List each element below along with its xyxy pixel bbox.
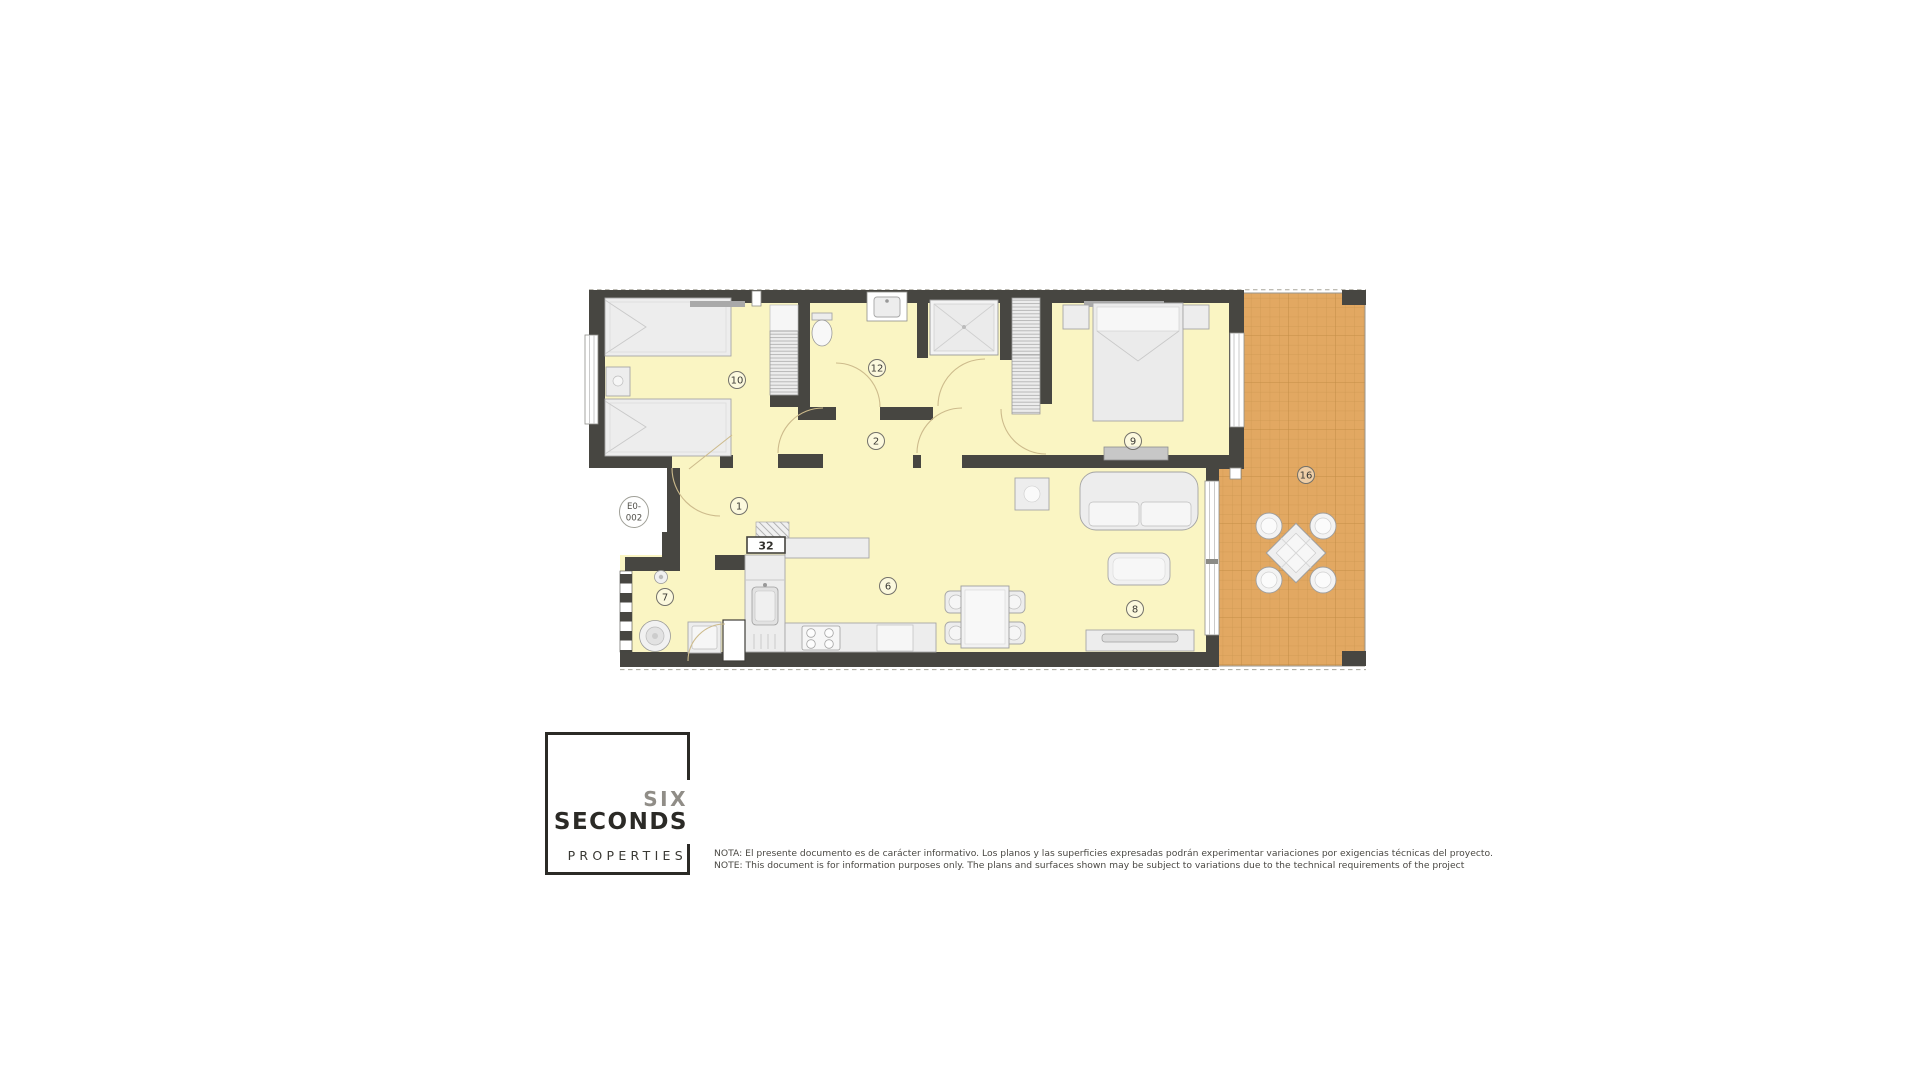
room-label-6: 6 [880,578,897,595]
utility-appliance [688,622,721,653]
disclaimer-note: NOTA: El presente documento es de caráct… [714,848,1406,872]
logo-border-bottom [545,872,690,875]
nightstand-right [1183,305,1209,329]
svg-text:12: 12 [871,364,884,375]
room-label-7: 7 [657,589,674,606]
logo-border-top [545,732,690,735]
boxed-label-32: 32 [747,537,785,553]
terrace-pillar [1230,468,1241,479]
svg-text:16: 16 [1300,471,1313,482]
svg-text:9: 9 [1130,437,1136,448]
room-label-12: 12 [869,360,886,377]
washing-machine [640,621,671,652]
utility-door-leaf [723,620,745,661]
logo-border-right-bottom [687,844,690,875]
double-bed [1093,303,1183,421]
six-seconds-logo: SIX SECONDS PROPERTIES [545,732,690,875]
room-label-1: 1 [731,498,748,515]
svg-text:E0-: E0- [627,502,641,512]
toilet [812,313,832,346]
bedroom2-window [585,335,598,424]
counter-section [877,625,913,651]
unit-label: E0- 002 [620,497,649,528]
kitchen-bar [785,538,869,558]
note-spanish: NOTA: El presente documento es de caráct… [714,848,1406,860]
svg-text:6: 6 [885,582,891,593]
side-table [1015,478,1049,510]
tv-unit [1086,630,1194,651]
nightstand [606,367,630,396]
room-label-8: 8 [1127,601,1144,618]
room-label-10: 10 [729,372,746,389]
room-label-2: 2 [868,433,885,450]
svg-text:1: 1 [736,502,742,513]
nightstand-left [1063,305,1089,329]
coffee-table [1108,553,1170,585]
utility-basin [655,571,668,584]
svg-text:8: 8 [1132,605,1138,616]
single-bed-bottom [605,399,731,456]
kitchen-counter-column [745,555,785,652]
boiler-unit [756,522,789,538]
terrace-dining-set [1256,513,1336,593]
logo-border-right-top [687,732,690,780]
logo-word-properties: PROPERTIES [568,850,687,863]
wardrobe-bedroom-main [1012,298,1040,414]
sofa [1080,472,1198,530]
wardrobe-bedroom2 [770,305,798,395]
washbasin [867,292,907,321]
room-label-16: 16 [1298,467,1315,484]
terrace-sliding-door [1205,481,1219,635]
floor-plan: 10 12 2 9 1 6 7 8 [584,289,1374,673]
hatched-wall [620,571,632,652]
svg-text:7: 7 [662,593,668,604]
svg-text:10: 10 [731,376,744,387]
shower [930,300,998,355]
logo-word-seconds: SECONDS [554,811,688,834]
logo-border-left [545,732,548,875]
note-english: NOTE: This document is for information p… [714,860,1406,872]
page: 10 12 2 9 1 6 7 8 [0,0,1920,1080]
stove [802,626,840,650]
wall-duct [752,291,761,306]
svg-text:002: 002 [626,514,642,524]
svg-text:32: 32 [758,540,773,553]
floor-plan-container: 10 12 2 9 1 6 7 8 [584,289,1374,673]
logo-word-six: SIX [643,789,688,809]
room-label-9: 9 [1125,433,1142,450]
svg-text:2: 2 [873,437,879,448]
bedroom-main-window [1230,333,1244,427]
wall-shelf [690,301,745,307]
